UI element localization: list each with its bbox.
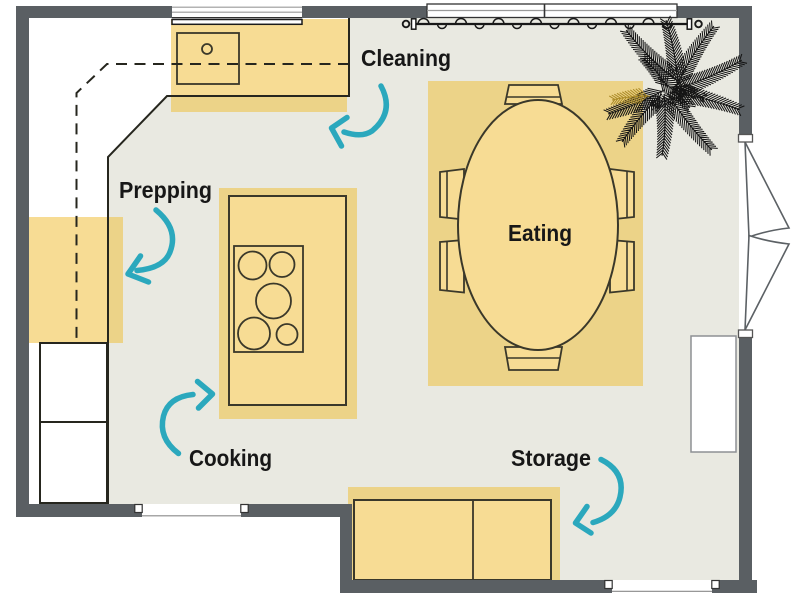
svg-text:Storage: Storage <box>511 445 591 471</box>
svg-text:Cooking: Cooking <box>189 445 272 471</box>
svg-text:Cleaning: Cleaning <box>361 45 451 71</box>
svg-text:Eating: Eating <box>508 220 572 246</box>
svg-text:Prepping: Prepping <box>119 177 212 203</box>
